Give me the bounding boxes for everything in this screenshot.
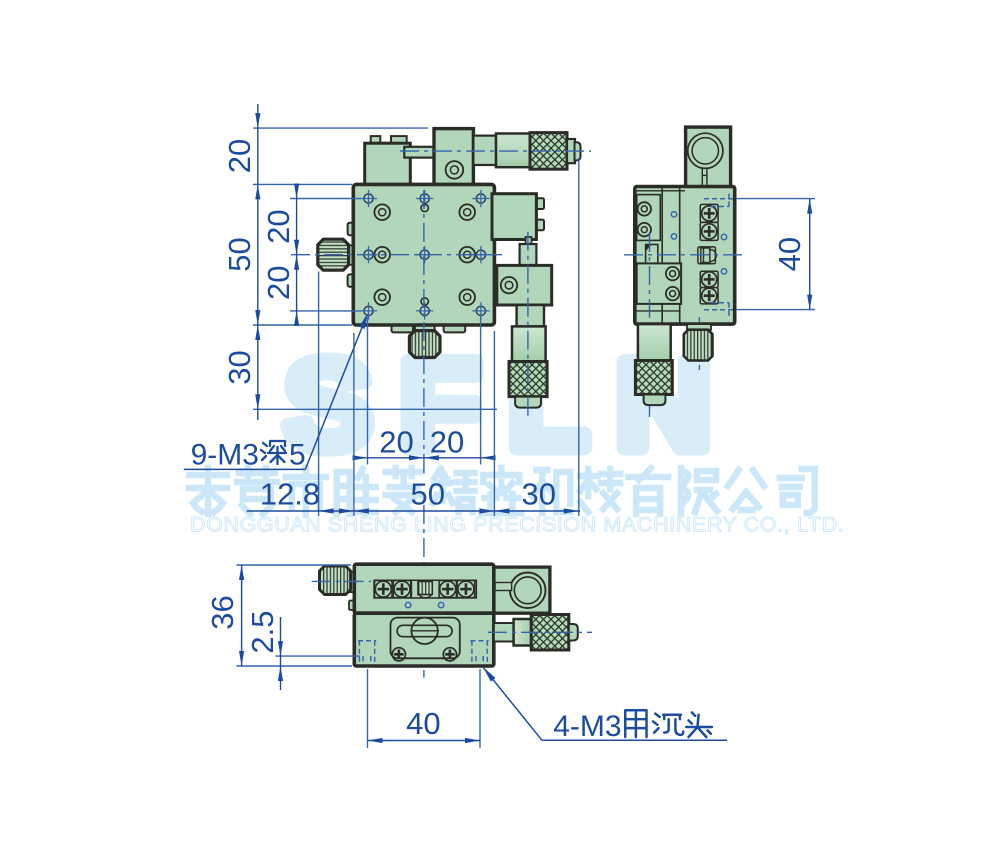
svg-text:40: 40	[406, 706, 440, 741]
svg-text:30: 30	[222, 350, 257, 384]
svg-text:40: 40	[772, 237, 807, 271]
svg-text:20: 20	[379, 425, 413, 460]
svg-text:50: 50	[410, 477, 444, 512]
svg-text:36: 36	[205, 595, 240, 629]
svg-text:20: 20	[261, 266, 296, 300]
svg-text:2.5: 2.5	[245, 610, 280, 653]
svg-text:5: 5	[289, 439, 306, 472]
svg-text:30: 30	[522, 477, 556, 512]
svg-text:9-M3: 9-M3	[191, 439, 259, 472]
svg-text:20: 20	[222, 139, 257, 173]
svg-text:50: 50	[222, 237, 257, 271]
svg-text:20: 20	[430, 425, 464, 460]
svg-text:DONGGUAN SHENG LING PRECISION: DONGGUAN SHENG LING PRECISION MACHINERY …	[190, 513, 844, 537]
svg-text:20: 20	[261, 209, 296, 243]
svg-text:4-M3: 4-M3	[553, 710, 621, 743]
svg-text:12.8: 12.8	[260, 477, 320, 512]
